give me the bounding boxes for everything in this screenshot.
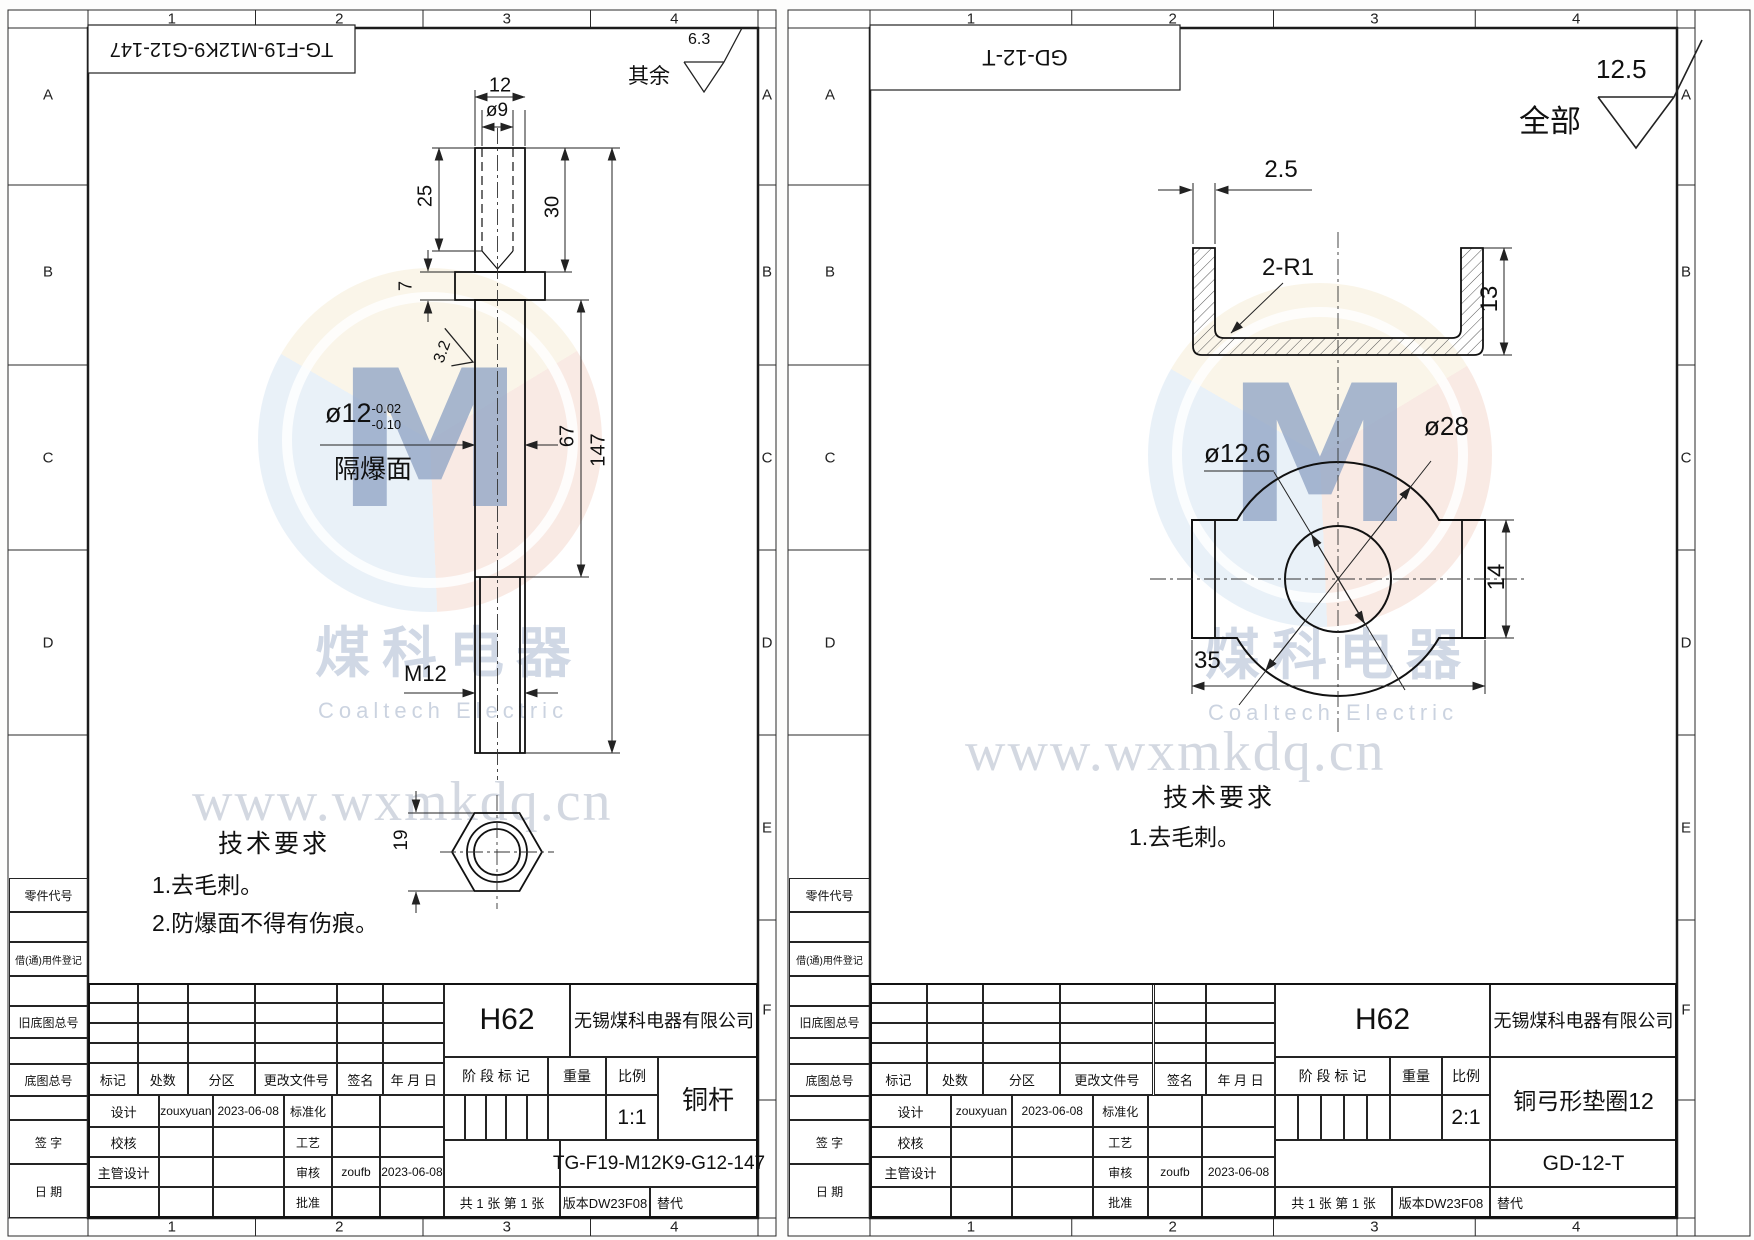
tech-req-item: 1.去毛刺。	[152, 866, 263, 900]
signature-cell	[332, 1095, 380, 1127]
drawing-number-cell: GD-12-T	[1490, 1140, 1677, 1187]
stage-mark-cell	[1298, 1095, 1321, 1140]
dim-label: 13	[1476, 286, 1504, 313]
signature-cell: 工艺	[284, 1127, 332, 1157]
revision-header-cell: 处数	[138, 1063, 188, 1095]
stage-mark-cell	[1321, 1095, 1344, 1140]
signature-cell	[1012, 1157, 1093, 1187]
signature-cell: 校核	[88, 1127, 159, 1157]
stage-mark-cell	[444, 1095, 465, 1140]
scale-value-cell: 1:1	[606, 1095, 658, 1140]
scale-header: 比例	[606, 1057, 658, 1095]
revision-row-cell	[983, 1043, 1060, 1063]
dim-label: ø12.6	[1204, 438, 1271, 469]
revision-row-cell	[1206, 983, 1275, 1003]
grid-row-label: A	[762, 87, 772, 104]
signature-cell	[380, 1127, 444, 1157]
dim-tolerance-group: ø12 -0.02 -0.10	[325, 398, 401, 432]
stage-mark-cell	[486, 1095, 507, 1140]
tech-req-item: 1.去毛刺。	[1129, 818, 1240, 852]
stage-mark-cell	[506, 1095, 527, 1140]
margin-label-cell: 旧底图总号	[9, 1006, 88, 1038]
revision-header-cell: 分区	[188, 1063, 256, 1095]
dim-label: 147	[588, 433, 611, 466]
revision-row-cell	[1154, 983, 1207, 1003]
dim-label: 19	[391, 829, 413, 850]
empty-cell	[444, 1140, 560, 1187]
revision-row-cell	[927, 983, 984, 1003]
margin-label-cell	[9, 1038, 88, 1064]
margin-label-cell	[789, 976, 870, 1006]
part-number-box: TG-F19-M12K9-G12-147	[88, 25, 355, 73]
grid-row-label: D	[762, 635, 773, 652]
grid-col-label: 4	[1572, 11, 1580, 28]
signature-cell	[1202, 1187, 1275, 1218]
grid-row-label: E	[1681, 820, 1691, 837]
weight-value-cell	[1390, 1095, 1442, 1140]
grid-col-label: 3	[1370, 11, 1378, 28]
revision-row-cell	[255, 1003, 337, 1023]
revision-row-cell	[927, 1023, 984, 1043]
signature-cell	[88, 1187, 159, 1218]
signature-cell	[380, 1187, 444, 1218]
signature-cell	[1148, 1187, 1202, 1218]
revision-row-cell	[188, 1023, 256, 1043]
signature-cell	[213, 1127, 284, 1157]
signature-cell: zoufb	[332, 1157, 380, 1187]
margin-label-cell	[9, 912, 88, 942]
revision-header-cell: 更改文件号	[255, 1063, 337, 1095]
revision-row-cell	[1154, 1003, 1207, 1023]
signature-cell: 2023-06-08	[1202, 1157, 1275, 1187]
company-cell: 无锡煤科电器有限公司	[1490, 983, 1677, 1057]
revision-row-cell	[255, 1023, 337, 1043]
stage-mark-header: 阶 段 标 记	[444, 1057, 548, 1095]
signature-cell	[1202, 1095, 1275, 1127]
signature-cell: 设计	[870, 1095, 951, 1127]
weight-header: 重量	[548, 1057, 606, 1095]
margin-label-cell	[789, 912, 870, 942]
stage-mark-header: 阶 段 标 记	[1275, 1057, 1390, 1095]
signature-cell: 主管设计	[88, 1157, 159, 1187]
margin-label-cell: 日 期	[9, 1164, 88, 1218]
signature-cell	[213, 1187, 284, 1218]
revision-row-cell	[138, 1043, 188, 1063]
tech-req-title: 技术要求	[218, 824, 330, 860]
grid-col-label: 2	[1168, 1219, 1176, 1236]
revision-row-cell	[1060, 1043, 1153, 1063]
dim-label: 14	[1483, 564, 1511, 591]
grid-col-label: 3	[1370, 1219, 1378, 1236]
grid-row-label: C	[43, 450, 54, 467]
dim-label: ø9	[486, 100, 508, 122]
revision-row-cell	[383, 983, 444, 1003]
grid-row-label: D	[43, 635, 54, 652]
margin-label-cell	[789, 1096, 870, 1120]
dim-label: 25	[415, 185, 438, 207]
dim-label: ø28	[1424, 411, 1469, 442]
signature-cell: 2023-06-08	[213, 1095, 284, 1127]
grid-col-label: 2	[335, 1219, 343, 1236]
flameproof-face-label: 隔爆面	[334, 449, 412, 486]
dim-label: 7	[396, 281, 417, 291]
revision-row-cell	[337, 1003, 383, 1023]
revision-row-cell	[1060, 983, 1153, 1003]
revision-row-cell	[927, 1043, 984, 1063]
margin-label-cell	[789, 1038, 870, 1064]
part-number-box: GD-12-T	[870, 25, 1180, 90]
grid-row-label: D	[825, 635, 836, 652]
revision-row-cell	[870, 1003, 927, 1023]
revision-row-cell	[1154, 1043, 1207, 1063]
revision-row-cell	[1206, 1043, 1275, 1063]
grid-row-label: E	[762, 820, 772, 837]
revision-row-cell	[188, 983, 256, 1003]
signature-cell: 标准化	[1093, 1095, 1148, 1127]
revision-row-cell	[255, 1043, 337, 1063]
signature-cell: 工艺	[1093, 1127, 1148, 1157]
margin-label-cell: 借(通)用件登记	[789, 942, 870, 976]
grid-row-label: C	[1681, 450, 1692, 467]
signature-cell	[1148, 1095, 1202, 1127]
grid-col-label: 3	[503, 11, 511, 28]
weight-header: 重量	[1390, 1057, 1442, 1095]
grid-row-label: F	[762, 1002, 771, 1019]
margin-label-cell: 底图总号	[9, 1064, 88, 1096]
grid-row-label: A	[825, 87, 835, 104]
grid-row-label: C	[762, 450, 773, 467]
signature-cell	[1012, 1127, 1093, 1157]
margin-label-cell: 签 字	[789, 1120, 870, 1164]
stage-mark-cell	[1367, 1095, 1390, 1140]
weight-value-cell	[548, 1095, 606, 1140]
part-name-cell: 铜弓形垫圈12	[1490, 1057, 1677, 1140]
grid-col-label: 4	[670, 11, 678, 28]
revision-row-cell	[138, 1023, 188, 1043]
revision-row-cell	[188, 1003, 256, 1023]
grid-row-label: D	[1681, 635, 1692, 652]
surface-note-prefix: 其余	[628, 60, 670, 90]
margin-label-cell: 零件代号	[9, 878, 88, 912]
signature-cell	[332, 1187, 380, 1218]
dim-label: 30	[542, 196, 565, 218]
margin-label-cell	[9, 1096, 88, 1120]
radius-label: 2-R1	[1262, 254, 1314, 282]
margin-label-cell: 日 期	[789, 1164, 870, 1218]
signature-cell	[1202, 1127, 1275, 1157]
revision-row-cell	[870, 983, 927, 1003]
grid-col-label: 1	[168, 1219, 176, 1236]
revision-row-cell	[138, 1003, 188, 1023]
revision-row-cell	[383, 1023, 444, 1043]
revision-row-cell	[255, 983, 337, 1003]
signature-cell: 批准	[1093, 1187, 1148, 1218]
dim-label: ø12	[325, 398, 372, 429]
signature-cell: zouxyuan	[951, 1095, 1012, 1127]
stage-mark-cell	[1344, 1095, 1367, 1140]
revision-row-cell	[1206, 1003, 1275, 1023]
grid-row-label: B	[1681, 264, 1691, 281]
revision-row-cell	[870, 1023, 927, 1043]
revision-row-cell	[870, 1043, 927, 1063]
material-cell: H62	[444, 983, 570, 1057]
signature-cell: zouxyuan	[159, 1095, 212, 1127]
revision-header-cell: 分区	[983, 1063, 1060, 1095]
revision-row-cell	[927, 1003, 984, 1023]
revision-header-cell: 签名	[1154, 1063, 1207, 1095]
revision-row-cell	[383, 1043, 444, 1063]
grid-row-label: F	[1681, 1002, 1690, 1019]
dim-label: 12	[489, 75, 511, 98]
scale-header: 比例	[1442, 1057, 1490, 1095]
signature-cell	[1148, 1127, 1202, 1157]
revision-row-cell	[1060, 1003, 1153, 1023]
grid-row-label: B	[762, 264, 772, 281]
sheet-count-cell: 共 1 张 第 1 张	[1275, 1187, 1392, 1218]
margin-label-cell: 签 字	[9, 1120, 88, 1164]
signature-cell	[951, 1157, 1012, 1187]
revision-row-cell	[1206, 1023, 1275, 1043]
empty-cell	[1275, 1140, 1490, 1187]
grid-row-label: B	[43, 264, 53, 281]
scale-value-cell: 2:1	[1442, 1095, 1490, 1140]
tolerance-upper: -0.02	[372, 401, 402, 417]
grid-col-label: 3	[503, 1219, 511, 1236]
margin-label-cell	[9, 976, 88, 1006]
stage-mark-cell	[527, 1095, 548, 1140]
revision-row-cell	[88, 1003, 138, 1023]
signature-cell	[870, 1187, 951, 1218]
signature-cell: zoufb	[1148, 1157, 1202, 1187]
revision-row-cell	[88, 1043, 138, 1063]
margin-label-cell: 底图总号	[789, 1064, 870, 1096]
signature-cell: 标准化	[284, 1095, 332, 1127]
revision-row-cell	[138, 983, 188, 1003]
grid-row-label: A	[43, 87, 53, 104]
grid-col-label: 4	[1572, 1219, 1580, 1236]
drawing-number-cell: TG-F19-M12K9-G12-147	[560, 1140, 758, 1187]
company-cell: 无锡煤科电器有限公司	[570, 983, 758, 1057]
stage-mark-cell	[465, 1095, 486, 1140]
revision-row-cell	[1060, 1023, 1153, 1043]
sheet-count-cell: 共 1 张 第 1 张	[444, 1187, 560, 1218]
revision-header-cell: 签名	[337, 1063, 383, 1095]
tech-req-item: 2.防爆面不得有伤痕。	[152, 904, 378, 938]
revision-row-cell	[337, 1023, 383, 1043]
revision-header-cell: 年 月 日	[1206, 1063, 1275, 1095]
revision-header-cell: 标记	[88, 1063, 138, 1095]
surface-roughness-value: 6.3	[688, 31, 710, 49]
revision-header-cell: 处数	[927, 1063, 984, 1095]
part-name-cell: 铜杆	[658, 1057, 758, 1140]
replace-cell: 替代	[1490, 1187, 1677, 1218]
signature-cell	[159, 1127, 212, 1157]
grid-col-label: 1	[967, 1219, 975, 1236]
margin-label-cell: 旧底图总号	[789, 1006, 870, 1038]
grid-row-label: A	[1681, 87, 1691, 104]
signature-cell: 审核	[1093, 1157, 1148, 1187]
replace-cell: 替代	[650, 1187, 758, 1218]
signature-cell: 设计	[88, 1095, 159, 1127]
signature-cell	[951, 1187, 1012, 1218]
dim-label: 35	[1194, 647, 1221, 675]
revision-header-cell: 更改文件号	[1060, 1063, 1153, 1095]
revision-row-cell	[337, 983, 383, 1003]
revision-row-cell	[88, 983, 138, 1003]
version-cell: 版本DW23F08	[1392, 1187, 1490, 1218]
revision-row-cell	[983, 983, 1060, 1003]
signature-cell: 2023-06-08	[380, 1157, 444, 1187]
surface-roughness-value: 12.5	[1596, 54, 1647, 85]
revision-row-cell	[983, 1023, 1060, 1043]
revision-row-cell	[88, 1023, 138, 1043]
signature-cell	[159, 1187, 212, 1218]
material-cell: H62	[1275, 983, 1490, 1057]
signature-cell	[1012, 1187, 1093, 1218]
revision-row-cell	[188, 1043, 256, 1063]
revision-header-cell: 年 月 日	[383, 1063, 444, 1095]
tech-req-title: 技术要求	[1163, 778, 1275, 814]
tolerance-stack: -0.02 -0.10	[372, 401, 402, 432]
thread-label: M12	[404, 661, 447, 687]
signature-cell: 校核	[870, 1127, 951, 1157]
grid-row-label: B	[825, 264, 835, 281]
revision-row-cell	[983, 1003, 1060, 1023]
surface-note-prefix: 全部	[1519, 96, 1581, 141]
signature-cell: 主管设计	[870, 1157, 951, 1187]
revision-row-cell	[1154, 1023, 1207, 1043]
version-cell: 版本DW23F08	[560, 1187, 650, 1218]
tolerance-lower: -0.10	[372, 417, 402, 433]
grid-col-label: 4	[670, 1219, 678, 1236]
drawing-scan-page: M 煤科电器 Coaltech Electric www.wxmkdq.cn M…	[0, 0, 1754, 1240]
signature-cell	[213, 1157, 284, 1187]
signature-cell	[332, 1127, 380, 1157]
dim-label: 67	[557, 425, 580, 447]
stage-mark-cell	[1275, 1095, 1298, 1140]
revision-header-cell: 标记	[870, 1063, 927, 1095]
revision-row-cell	[337, 1043, 383, 1063]
signature-cell: 2023-06-08	[1012, 1095, 1093, 1127]
signature-cell: 审核	[284, 1157, 332, 1187]
signature-cell	[159, 1157, 212, 1187]
margin-label-cell: 零件代号	[789, 878, 870, 912]
revision-row-cell	[383, 1003, 444, 1023]
signature-cell: 批准	[284, 1187, 332, 1218]
dim-label: 2.5	[1264, 156, 1297, 184]
grid-row-label: C	[825, 450, 836, 467]
margin-label-cell: 借(通)用件登记	[9, 942, 88, 976]
signature-cell	[380, 1095, 444, 1127]
signature-cell	[951, 1127, 1012, 1157]
